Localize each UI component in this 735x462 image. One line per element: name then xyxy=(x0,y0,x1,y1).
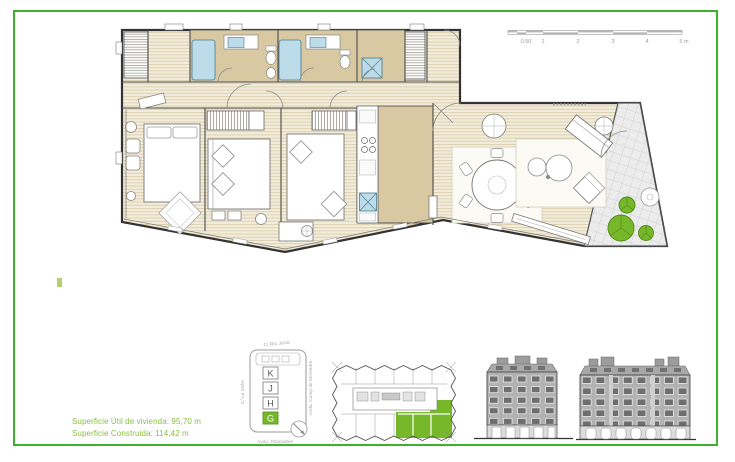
unit-letter: K xyxy=(267,369,273,379)
page-marker xyxy=(57,278,62,287)
unit-letter: J xyxy=(268,384,273,394)
scale-tick: 5 m xyxy=(679,39,689,45)
street-label-right: Avda. Camp de Morvedre xyxy=(308,360,314,415)
coffee-table xyxy=(528,158,546,176)
building-elevation-2 xyxy=(576,357,696,440)
scale-tick: 3 xyxy=(611,39,614,45)
scale-tick: 1 xyxy=(541,39,544,45)
kitchen-sink-icon xyxy=(360,193,377,211)
built-area-label: Superficie Construida: 114,42 m xyxy=(72,428,201,440)
key-plan: K J H G C/ Río Júcar C/ La Safor Avda. C… xyxy=(240,340,314,445)
wardrobe xyxy=(312,111,348,130)
scale-tick: 0.50 xyxy=(521,39,532,45)
closet-hall xyxy=(124,32,148,78)
terrace-table xyxy=(641,188,659,206)
bathtub-icon xyxy=(192,40,215,80)
wardrobe xyxy=(207,111,249,130)
drawing-canvas: 0.50 1 2 3 4 5 m xyxy=(0,0,735,462)
toilet-icon xyxy=(340,56,350,69)
bedroom-2 xyxy=(207,111,270,225)
street-label-bottom: Avda. Ribesaltes xyxy=(257,439,294,445)
dining-table xyxy=(472,160,522,210)
floor-plan xyxy=(116,24,667,252)
kitchen-door xyxy=(429,196,437,218)
closet-entry xyxy=(405,32,425,80)
street-label-top: C/ Río Júcar xyxy=(263,340,291,349)
useful-area-label: Superficie Útil de vivienda: 95,70 m xyxy=(72,416,201,428)
scale-tick: 2 xyxy=(576,39,579,45)
bed xyxy=(208,139,270,209)
scale-bar: 0.50 1 2 3 4 5 m xyxy=(508,31,689,46)
sink-icon xyxy=(310,38,326,48)
building-elevation-1 xyxy=(474,356,573,439)
bidet-icon xyxy=(267,68,276,79)
bathtub-icon xyxy=(279,40,301,80)
north-compass-icon xyxy=(291,421,307,437)
unit-letter-highlighted: G xyxy=(267,414,274,424)
toilet-icon xyxy=(266,52,276,65)
brochure-page: 0.50 1 2 3 4 5 m xyxy=(0,0,735,462)
surface-area-labels: Superficie Útil de vivienda: 95,70 m Sup… xyxy=(72,416,201,439)
kitchen-floor xyxy=(378,106,433,223)
unit-letter: H xyxy=(267,399,274,409)
scale-tick: 4 xyxy=(645,39,648,45)
street-label-left: C/ La Safor xyxy=(240,379,246,404)
sink-icon xyxy=(228,38,244,48)
site-plan xyxy=(332,362,456,442)
utility-sink-icon xyxy=(362,58,382,78)
